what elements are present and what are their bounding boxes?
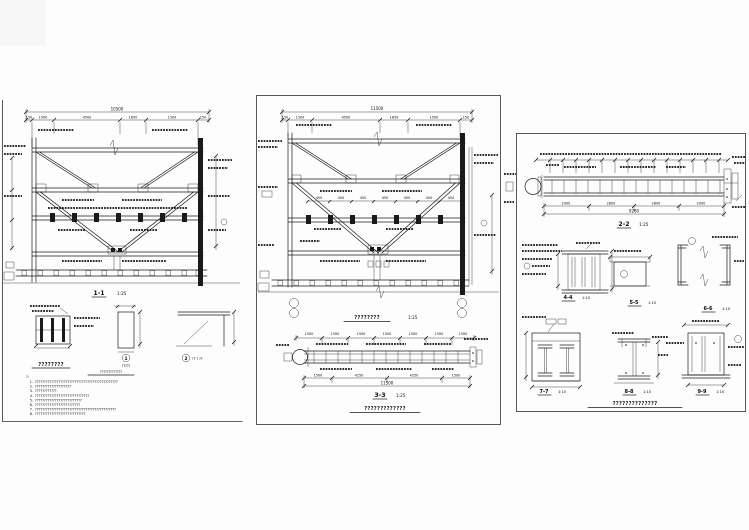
beam-title: ????????????? [364, 406, 406, 412]
dim: 1500 [305, 332, 314, 336]
section-scale: 1:10 [558, 390, 567, 394]
note-num: 6. [30, 403, 33, 407]
note-text: ????????????????????????? [35, 403, 80, 407]
dim: 1500 [383, 332, 392, 336]
weld-symbol-icon [689, 238, 696, 245]
section-4-4: 4-4 1:10 [556, 243, 614, 301]
scan-artifact [0, 0, 46, 46]
dim: 2800 [652, 202, 661, 206]
dim: 450 [382, 196, 388, 200]
section-label: 2-2 [618, 221, 629, 228]
section-1-1-label: 1-1 1:25 [92, 290, 127, 297]
panel-left-truss-1-1: 10500 150 1500 4500 1850 1500 150 [2, 100, 243, 422]
dim: 4250 [355, 374, 364, 378]
dim: 4500 [342, 116, 351, 120]
sections-drawing: 2000 2800 2800 2000 9280 2-2 1:25 [516, 133, 746, 412]
note-num: 2. [30, 385, 33, 389]
overall-dim: 10500 [111, 107, 124, 112]
dim: 450 [448, 196, 454, 200]
section-5-5: 5-5 1:10 [608, 251, 657, 306]
section-label: 6-6 [703, 306, 713, 312]
dim: 150 [200, 116, 206, 120]
section-label: 7-7 [539, 389, 549, 395]
detail-badge: 1 [125, 356, 128, 362]
dim: 450 [360, 196, 366, 200]
grid-bubble [458, 309, 467, 318]
section-scale: 1:25 [396, 393, 406, 398]
dim: 1500 [409, 332, 418, 336]
dim: 2000 [697, 202, 706, 206]
note-num: 8. [30, 412, 33, 416]
section-scale: 1:25 [117, 291, 127, 296]
dim: 1500 [452, 374, 461, 378]
section-3-3-label: 3-3 1:25 ????????????? [350, 392, 420, 413]
section-9-9: 9-9 1:10 [666, 321, 744, 395]
panel-border [517, 134, 746, 412]
note-text: ???????????????????? [35, 385, 71, 389]
section-7-7: 7-7 1:10 [522, 317, 582, 395]
dim: 2800 [607, 202, 616, 206]
note-text: ?????????????????????????? [35, 398, 82, 402]
dim: 150 [463, 116, 469, 120]
detail-title: ???????? [38, 362, 64, 368]
grid-bubble [458, 299, 467, 308]
annotation-leaders [4, 130, 232, 261]
note-text: ????????????????????????????????????????… [35, 380, 118, 384]
panel-middle-truss-elevation: 11500 150 1500 4500 1850 1500 150 [256, 95, 501, 425]
section-8-8: 8-8 1:10 [612, 333, 668, 395]
section-label: 5-5 [629, 300, 639, 306]
note-text: ?????????????????????????????? [35, 394, 89, 398]
top-dimension-chain: 10500 150 1500 4500 1850 1500 150 [24, 107, 211, 147]
dim: 1500 [296, 116, 305, 120]
drawing-title: ?????????????? [613, 401, 658, 407]
dim: 4500 [83, 116, 92, 120]
truss-members [258, 132, 499, 298]
dim: 1500 [39, 116, 48, 120]
weld-symbol-icon [481, 220, 487, 226]
note-num: 7. [30, 408, 33, 412]
notes-header: ?: [26, 375, 29, 379]
detail-badge: 2 [185, 356, 188, 362]
bolt-symbol-icon [621, 271, 628, 278]
grid-bubble [290, 299, 299, 308]
detail-plate: 1 ????? ????????????? [88, 305, 142, 375]
section-6-6: 6-6 1:10 [678, 237, 744, 312]
dim: 4250 [410, 374, 419, 378]
section-label: 1-1 [93, 290, 104, 297]
section-label: 9-9 [697, 389, 707, 395]
section-scale: 1:25 [639, 222, 649, 227]
weld-symbol-icon [524, 263, 530, 269]
note-text: ????????????????????????????????????????… [35, 408, 116, 412]
dim: 1500 [331, 332, 340, 336]
dim: 1500 [435, 332, 444, 336]
detail-column-section: ???????? [30, 306, 100, 368]
dim: 450 [338, 196, 344, 200]
cad-drawing-sheet: 10500 150 1500 4500 1850 1500 150 [0, 0, 749, 530]
footer-title: ?????????????? [588, 401, 682, 408]
overall-dim: 11500 [381, 381, 394, 386]
elevation-title: ???????? 1:25 [344, 315, 418, 322]
detail-caption: ?? ? ?? [192, 357, 203, 361]
truss-members [2, 138, 240, 286]
beam-3-3-detail: 1500 1500 1500 1500 1500 1500 1500 1500 … [276, 332, 488, 388]
section-scale: 1:10 [648, 301, 657, 305]
beam-2-2-detail: 2000 2800 2800 2000 9280 2-2 1:25 [525, 154, 745, 228]
weld-symbol-icon [221, 219, 227, 225]
detail-bracket: 2 ?? ? ?? [176, 310, 236, 362]
section-scale: 1:10 [643, 390, 652, 394]
note-text: ???????????????????????????? [35, 412, 86, 416]
truss-elevation-drawing: 11500 150 1500 4500 1850 1500 150 [256, 95, 501, 425]
dim: 150 [282, 116, 288, 120]
dim: 450 [316, 196, 322, 200]
dim: 1500 [168, 116, 177, 120]
overall-dim: 9280 [629, 209, 640, 214]
detail-title: ????????????? [100, 370, 122, 374]
section-label: 8-8 [624, 389, 634, 395]
dim: 1500 [357, 332, 366, 336]
dim: 2000 [562, 202, 571, 206]
note-num: 1. [30, 380, 33, 384]
dim: 1500 [459, 332, 468, 336]
note-num: 4. [30, 394, 33, 398]
section-scale: 1:10 [722, 307, 731, 311]
section-label: 4-4 [563, 295, 573, 301]
section-scale: 1:10 [582, 296, 591, 300]
overall-dim: 11500 [371, 106, 384, 111]
weld-symbol-icon [735, 336, 742, 343]
panel-right-sections: 2000 2800 2800 2000 9280 2-2 1:25 [516, 133, 746, 412]
dim: 1500 [430, 116, 439, 120]
dim: 1850 [129, 116, 138, 120]
dim: 450 [404, 196, 410, 200]
dim: 1500 [314, 374, 323, 378]
general-notes: ?: 1. ??????????????????????????????????… [26, 375, 118, 416]
end-pin-circle [525, 179, 541, 195]
note-num: 5. [30, 398, 33, 402]
note-text: ???????????? [35, 389, 57, 393]
dim: 450 [426, 196, 432, 200]
end-pin-circle [293, 350, 308, 365]
section-label: 3-3 [374, 392, 385, 399]
section-scale: 1:10 [716, 390, 725, 394]
grid-bubble [290, 309, 299, 318]
dim: 1850 [390, 116, 399, 120]
detail-caption: ????? [122, 364, 131, 368]
dim: 150 [26, 116, 32, 120]
drawing-scale: 1:25 [408, 315, 418, 320]
note-num: 3. [30, 389, 33, 393]
truss-1-1-drawing: 10500 150 1500 4500 1850 1500 150 [2, 100, 243, 422]
drawing-title: ???????? [354, 315, 380, 321]
annotation-block-left [522, 245, 562, 274]
